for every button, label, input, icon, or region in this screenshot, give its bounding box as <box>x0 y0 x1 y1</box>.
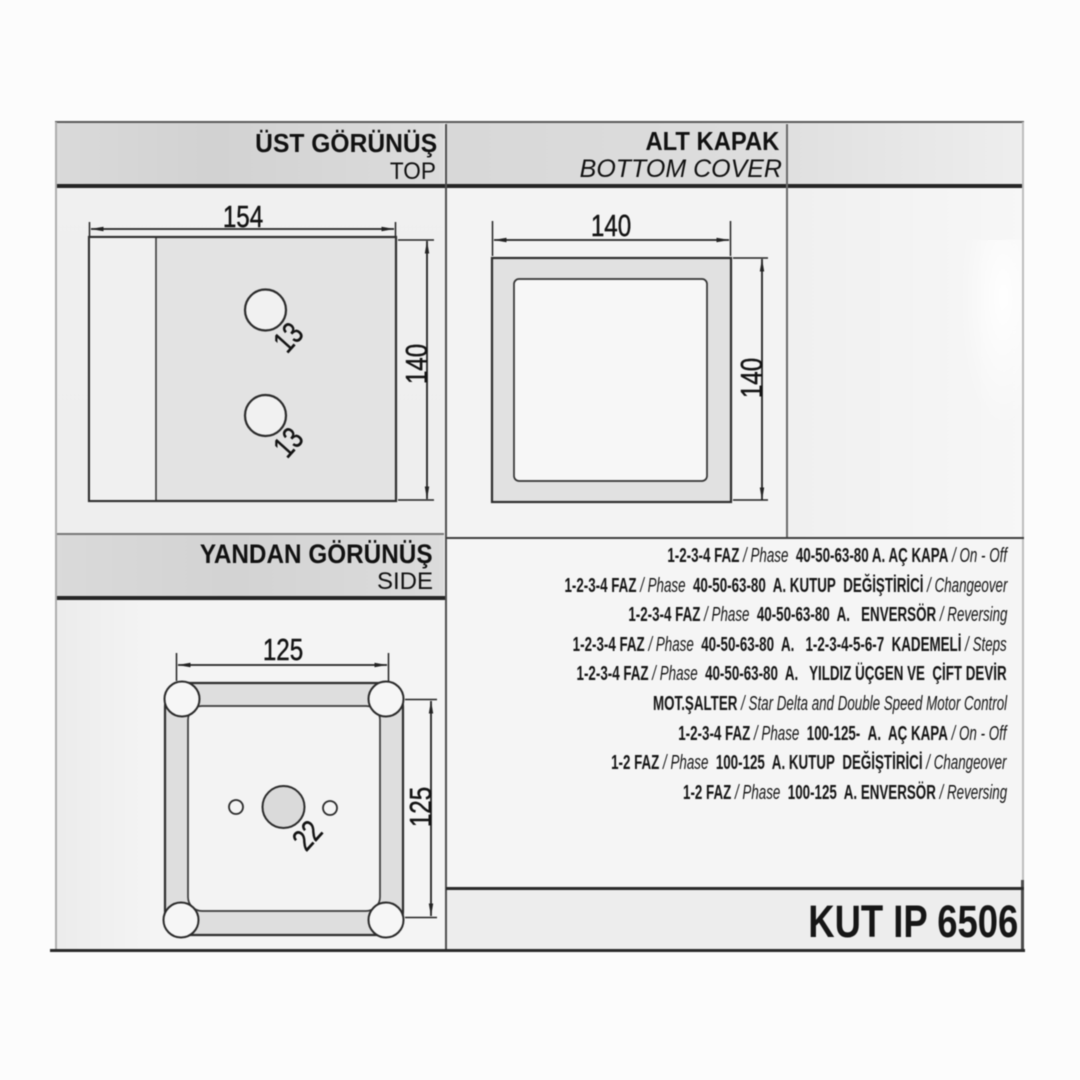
svg-text:140: 140 <box>591 208 631 243</box>
svg-text:140: 140 <box>734 358 769 398</box>
svg-text:154: 154 <box>223 199 263 234</box>
svg-text:140: 140 <box>399 344 434 384</box>
svg-text:125: 125 <box>403 787 438 827</box>
svg-text:125: 125 <box>263 632 303 667</box>
